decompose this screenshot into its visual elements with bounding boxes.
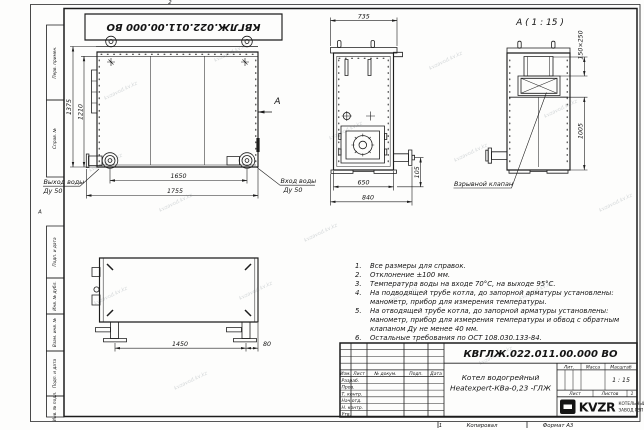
stamp-podp-data-2: Подп. и дата — [52, 359, 58, 389]
col-data: Дата — [429, 371, 442, 377]
mount-cross-right — [241, 58, 249, 66]
note-item: 5. На отводящей трубе котла, до запорной… — [352, 307, 642, 334]
company-name-line1: КОТЕЛЬНЫЙ — [619, 401, 644, 406]
scale-value: 1 : 15 — [612, 377, 630, 384]
inlet-label: Вход воды — [281, 177, 317, 185]
technical-notes: 1. Все размеры для справок. 2. Отклонени… — [352, 262, 642, 343]
mass-label: Масса — [586, 364, 601, 370]
dim-840: 840 — [362, 194, 374, 201]
dim-1650: 1650 — [170, 173, 186, 180]
front-view: 1375 1210 1650 1755 Выход воды Ду 50 Вхо… — [43, 36, 317, 198]
row-razrab: Разраб. — [342, 378, 360, 384]
top-doc-number-box: КВГЛЖ.022.011.00.000 ВО — [85, 14, 282, 40]
watermark-text: kvzavod.kv.kz — [598, 192, 633, 213]
stamp-podp-data-1: Подп. и дата — [52, 237, 58, 267]
dim-1450: 1450 — [172, 341, 188, 348]
note-text: манометр, прибор для измерения температу… — [370, 316, 619, 325]
outlet-dn-label: Ду 50 — [43, 187, 63, 195]
note-text: манометр, прибор для измерения температу… — [370, 298, 614, 307]
row-nachotd: Нач.отд. — [342, 398, 362, 404]
dim-1210: 1210 — [77, 104, 84, 120]
zone-marker-bottom: 1 — [439, 423, 442, 429]
note-text: Температура воды на входе 70°С, на выход… — [370, 280, 556, 289]
watermark-text: kvzavod.kv.kz — [93, 285, 128, 306]
note-number: 3. — [352, 280, 370, 289]
view-arrow-label: А — [273, 97, 280, 107]
stamp-perv-primen: Перв. примен. — [52, 46, 58, 78]
mount-cross-left — [107, 58, 115, 66]
row-nkontr: Н. контр. — [342, 405, 364, 411]
stamp-inv-dubl: Инв. № дубл. — [52, 281, 58, 310]
note-number: 2. — [352, 271, 370, 280]
note-number: 5. — [352, 307, 370, 334]
note-number: 4. — [352, 289, 370, 307]
note-item: 4. На подводящей трубе котла, до запорно… — [352, 289, 642, 307]
company-logo-text: KVZR — [579, 400, 616, 415]
note-text: Остальные требования по ОСТ 108.030.133-… — [370, 334, 542, 343]
row-utv: Утв. — [342, 412, 351, 418]
dim-650: 650 — [357, 179, 369, 186]
col-list: Лист — [352, 371, 365, 377]
product-name-line1: Котел водогрейный — [462, 373, 540, 382]
dim-1005: 1005 — [577, 123, 584, 139]
watermark-text: kvzavod.kv.kz — [428, 50, 463, 71]
watermark-text: kvzavod.kv.kz — [303, 222, 338, 243]
copied-label: Копировал — [467, 423, 498, 429]
valve-leader — [454, 93, 547, 189]
stamp-vzam-inv: Взам. инв. № — [52, 317, 58, 347]
outlet-label: Выход воды — [44, 178, 85, 186]
drawing-sheet: kvzavod.kv.kz kvzavod.kv.kz kvzavod.kv.k… — [0, 0, 644, 430]
side-view: 735 650 840 105 — [331, 13, 424, 205]
stamp-sprav-no: Справ. № — [52, 128, 58, 149]
note-text: На подводящей трубе котла, до запорной а… — [370, 289, 614, 298]
col-izm: Изм. — [340, 371, 351, 377]
explosion-valve-cross — [521, 78, 557, 93]
lit-label: Лит. — [563, 364, 574, 370]
bottom-view: 1450 80 — [92, 258, 271, 352]
note-text: клапаном Ду не менее 40 мм. — [370, 325, 619, 334]
col-doc: № докум. — [373, 371, 396, 377]
zone-marker-top: 2 — [168, 0, 172, 6]
row-prov: Пров. — [342, 385, 355, 391]
note-number: 1. — [352, 262, 370, 271]
title-block: КВГЛЖ.022.011.00.000 ВО Изм. Лист № доку… — [340, 343, 644, 418]
dim-735: 735 — [358, 13, 370, 20]
sheet-frame: 2 А 1 Копировал Формат А3 — [31, 0, 641, 429]
sheets-value: 1 — [631, 391, 634, 397]
note-item: 1. Все размеры для справок. — [352, 262, 642, 271]
sheet-label: Лист — [568, 391, 581, 397]
watermark-text: kvzavod.kv.kz — [543, 98, 578, 119]
detail-a-title: А ( 1 : 15 ) — [515, 18, 564, 28]
note-text: На отводящей трубе котла, до запорной ар… — [370, 307, 619, 316]
sheets-label: Листов — [601, 391, 619, 397]
border-stamps: Перв. примен. Справ. № Подп. и дата Инв.… — [47, 25, 65, 421]
row-tkontr: Т. контр. — [342, 391, 363, 397]
watermark-text: kvzavod.kv.kz — [103, 80, 138, 101]
scale-label: Масштаб — [610, 364, 632, 370]
col-podp: Подп. — [409, 371, 423, 377]
dim-80: 80 — [263, 341, 271, 348]
stamp-inv-podl: Инв. № подл. — [52, 392, 58, 422]
product-name-line2: Heatexpert-КВа-0,23 -ГЛЖ — [450, 384, 552, 393]
note-text: Все размеры для справок. — [370, 262, 466, 271]
dim-1375: 1375 — [66, 99, 73, 115]
doc-number: КВГЛЖ.022.011.00.000 ВО — [463, 349, 618, 360]
dim-105: 105 — [414, 166, 421, 178]
zone-marker-left: А — [37, 210, 42, 216]
note-item: 2. Отклонение ±100 мм. — [352, 271, 642, 280]
top-doc-number: КВГЛЖ.022.011.00.000 ВО — [106, 21, 261, 32]
format-label: Формат А3 — [543, 423, 574, 429]
note-item: 3. Температура воды на входе 70°С, на вы… — [352, 280, 642, 289]
explosion-valve-label: Взрывной клапан — [454, 180, 513, 188]
inlet-dn-label: Ду 50 — [283, 186, 303, 194]
dim-1755: 1755 — [167, 188, 183, 195]
company-name-line2: ЗАВОД РЭП — [619, 408, 644, 413]
watermark-text: kvzavod.kv.kz — [173, 370, 208, 391]
side-tab — [256, 138, 259, 152]
watermark-text: kvzavod.kv.kz — [238, 280, 273, 301]
watermark-text: kvzavod.kv.kz — [453, 142, 488, 163]
dim-150x250: 150×250 — [577, 30, 584, 59]
note-item: 6. Остальные требования по ОСТ 108.030.1… — [352, 334, 642, 343]
note-text: Отклонение ±100 мм. — [370, 271, 450, 280]
note-number: 6. — [352, 334, 370, 343]
drawing-canvas: kvzavod.kv.kz kvzavod.kv.kz kvzavod.kv.k… — [0, 0, 644, 430]
